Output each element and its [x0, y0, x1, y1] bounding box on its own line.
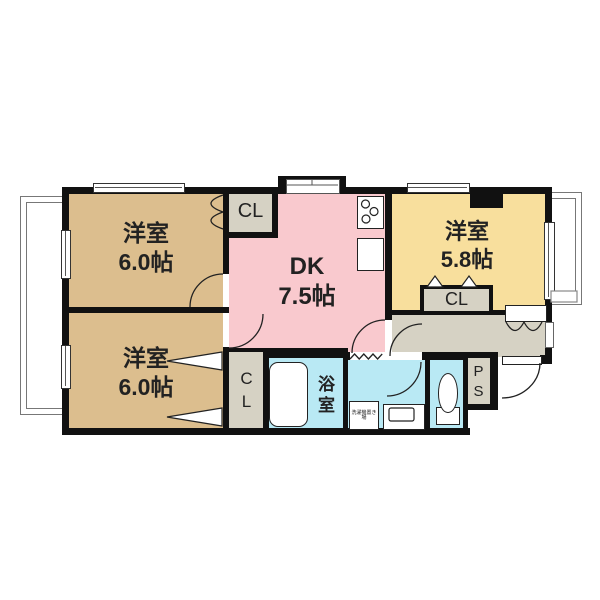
closet-top-label: CL — [229, 200, 272, 223]
room-name: DK — [237, 252, 377, 282]
folding-door-arrow — [461, 276, 477, 287]
room-label-western-right: 洋室 5.8帖 — [392, 218, 542, 274]
front-door-swing — [502, 363, 540, 398]
balcony-partition — [551, 291, 577, 302]
floorplan-canvas: 洗濯機置き場 — [0, 0, 600, 600]
door-swing-hall-washroom — [390, 324, 422, 356]
room-label-dk: DK 7.5帖 — [237, 252, 377, 312]
folding-door-arrow — [427, 276, 443, 287]
room-label-western-bottom-left: 洋室 6.0帖 — [69, 344, 223, 402]
door-swing-washroom — [387, 362, 421, 396]
door-swing-room-bottom-left — [229, 314, 263, 348]
room-area: 6.0帖 — [69, 248, 223, 277]
door-swing-dk-hall — [352, 320, 385, 353]
burner-icon — [362, 215, 370, 223]
room-name: 洋室 — [69, 344, 223, 373]
door-swing-room-top-left — [190, 274, 223, 307]
room-area: 6.0帖 — [69, 373, 223, 402]
closet-bottom-label: CL — [236, 364, 256, 420]
sink-basin-icon — [389, 408, 414, 421]
room-name: 洋室 — [69, 219, 223, 248]
room-name: 洋室 — [392, 218, 542, 246]
bathroom-label: 浴室 — [312, 368, 337, 424]
room-label-western-top-left: 洋室 6.0帖 — [69, 219, 223, 277]
accordion-zigzag — [350, 354, 382, 359]
shoe-cabinet-folding-door — [506, 322, 542, 331]
room-area: 5.8帖 — [392, 246, 542, 274]
room-area: 7.5帖 — [237, 282, 377, 312]
burner-icon — [370, 208, 378, 216]
burner-icon — [362, 200, 370, 208]
folding-door-arrow — [167, 408, 222, 426]
closet-right-label: CL — [424, 289, 489, 310]
pipe-space-label: PS — [470, 362, 487, 404]
